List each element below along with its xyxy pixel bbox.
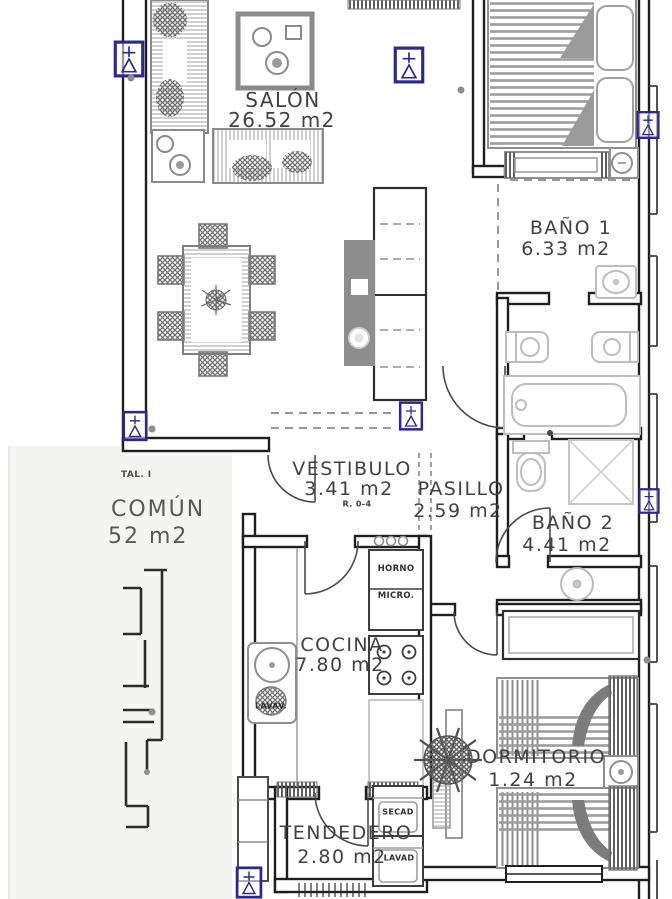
window-marker bbox=[400, 403, 422, 430]
window-marker bbox=[115, 42, 142, 76]
bano2-name-label: BAÑO 2 bbox=[532, 512, 614, 534]
tendedero-area-label: 2.80 m2 bbox=[297, 846, 386, 868]
washer-label: LAVAD bbox=[384, 854, 415, 863]
bathroom1-fixtures bbox=[504, 266, 640, 434]
comun-name-label: COMÚN bbox=[111, 497, 205, 522]
window-marker bbox=[395, 48, 422, 82]
headboard-1 bbox=[609, 676, 637, 760]
window-marker bbox=[639, 489, 658, 512]
pillow bbox=[597, 6, 633, 70]
closet-strip bbox=[238, 777, 268, 881]
bano1-area-label: 6.33 m2 bbox=[521, 238, 610, 260]
headboard-2 bbox=[609, 786, 637, 870]
plant-icon bbox=[414, 722, 484, 796]
bed-bench bbox=[505, 152, 609, 178]
toilet-tank bbox=[513, 441, 549, 453]
dryer-label: SECAD bbox=[382, 808, 413, 817]
window-marker bbox=[124, 412, 147, 440]
cocina-name-label: COCINA bbox=[300, 634, 383, 656]
vestibulo-note-label: R. 0-4 bbox=[343, 500, 372, 509]
salon-area-label: 26.52 m2 bbox=[228, 108, 336, 132]
vestibulo-name-label: VESTIBULO bbox=[292, 458, 412, 480]
dishwasher-label: LAVAV. bbox=[255, 702, 287, 711]
cocina-area-label: 7.80 m2 bbox=[295, 654, 384, 676]
comun-note-label: TAL. I bbox=[121, 470, 151, 480]
dining-set bbox=[158, 224, 275, 376]
window-marker bbox=[237, 868, 261, 897]
window-marker bbox=[638, 112, 659, 138]
pasillo-name-label: PASILLO bbox=[418, 478, 505, 500]
dormitorio-name-label: DORMITORIO bbox=[466, 746, 606, 768]
radiator bbox=[348, 0, 460, 9]
vestibulo-area-label: 3.41 m2 bbox=[304, 478, 393, 500]
pasillo-area-label: 2.59 m2 bbox=[413, 500, 502, 522]
oven-micro-column bbox=[369, 550, 423, 630]
vent bbox=[277, 782, 317, 797]
microwave-label: MICRO. bbox=[378, 591, 414, 601]
dormitorio-area-label: 1.24 m2 bbox=[488, 769, 577, 791]
comun-area-label: 52 m2 bbox=[108, 524, 188, 549]
pillow bbox=[597, 78, 633, 142]
bano1-name-label: BAÑO 1 bbox=[530, 217, 612, 239]
hall-closet bbox=[344, 188, 426, 400]
oven-label: HORNO bbox=[378, 564, 415, 574]
top-bedroom-furniture bbox=[488, 0, 638, 178]
wardrobe bbox=[503, 611, 639, 659]
bano2-area-label: 4.41 m2 bbox=[522, 534, 611, 556]
tendedero-name-label: TENDEDERO bbox=[280, 822, 413, 844]
floor-plan: SALÓN 26.52 m2 BAÑO 1 6.33 m2 VESTIBULO … bbox=[0, 0, 672, 899]
